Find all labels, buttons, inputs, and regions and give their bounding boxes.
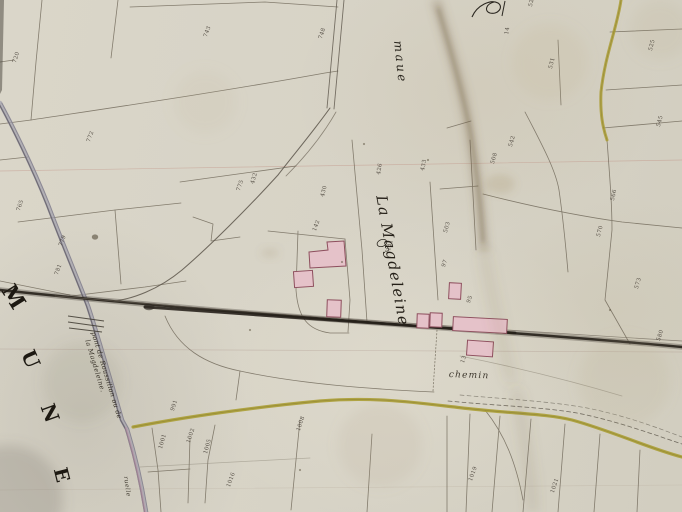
parcel-number: 95 <box>466 295 474 304</box>
parcel-number: 580 <box>656 329 665 342</box>
parcel-number: 772 <box>86 130 96 143</box>
parcel-number: 779 <box>58 234 68 247</box>
parcel-number: 748 <box>318 27 327 40</box>
parcel-number: 525 <box>648 39 657 52</box>
parcel-number: 142 <box>312 219 322 232</box>
parcel-number: 566 <box>610 189 618 201</box>
parcel-number: 1001 <box>158 433 168 449</box>
map-sheet: La Magdeleine maue pont de Roussillon ou… <box>0 0 682 512</box>
parcel-number: 14 <box>504 27 511 36</box>
parcel-number: 775 <box>236 179 245 192</box>
parcel-number: 720 <box>12 51 21 64</box>
parcel-number: 781 <box>54 263 64 276</box>
parcel-number: 13 <box>460 355 468 364</box>
parcel-number: 743 <box>203 25 213 38</box>
parcel-number-layer: 7207437485205255311477276577577978143243… <box>0 0 682 512</box>
parcel-number: 1002 <box>186 428 196 444</box>
parcel-number: 432 <box>250 172 259 185</box>
parcel-number: 1008 <box>296 416 306 432</box>
parcel-number: 1019 <box>468 466 479 482</box>
parcel-number: 1016 <box>226 472 237 488</box>
parcel-number: 433 <box>420 159 428 171</box>
parcel-number: 97 <box>441 259 449 268</box>
parcel-number: 508 <box>490 152 499 165</box>
parcel-number: 573 <box>634 277 643 290</box>
parcel-number: 531 <box>548 57 557 70</box>
parcel-number: 430 <box>320 185 329 198</box>
parcel-number: 570 <box>596 225 605 238</box>
parcel-number: 545 <box>656 115 665 128</box>
parcel-number: 520 <box>528 0 536 7</box>
parcel-number: 1021 <box>550 478 560 494</box>
parcel-number: 991 <box>170 399 179 412</box>
parcel-number: 141 <box>386 239 395 252</box>
parcel-number: 765 <box>16 199 25 212</box>
parcel-number: 1005 <box>203 438 213 454</box>
parcel-number: 542 <box>508 135 517 148</box>
parcel-number: 426 <box>376 163 384 175</box>
parcel-number: 503 <box>443 221 452 234</box>
